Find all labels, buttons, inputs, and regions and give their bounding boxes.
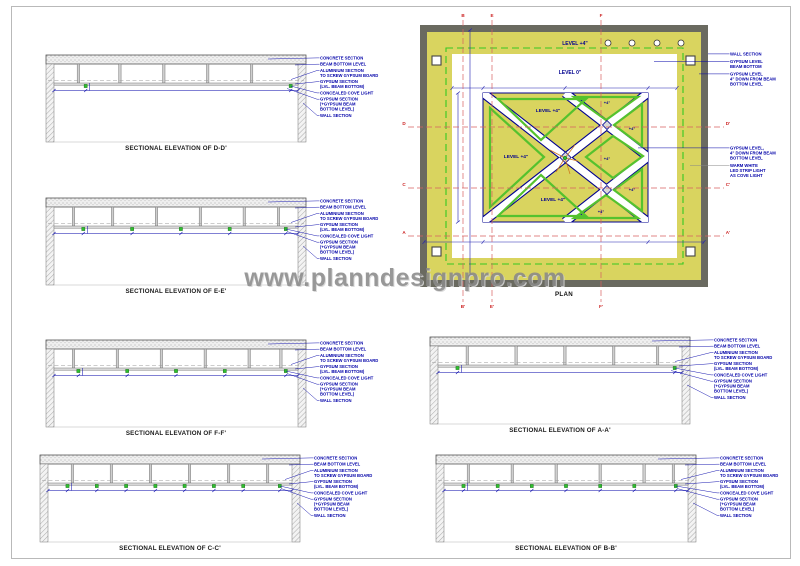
elevation-annotation: TO SCREW GYPSUM BOARD	[714, 355, 772, 360]
elevation-annotation: CONCRETE SECTION	[320, 340, 363, 345]
cove-light	[131, 227, 134, 230]
beam	[515, 346, 517, 365]
section-letter: D'	[726, 121, 730, 126]
section-letter: A'	[726, 230, 730, 235]
beam	[656, 346, 658, 365]
elevation-annotation: BEAM BOTTOM LEVEL	[320, 62, 367, 67]
beam	[111, 207, 113, 226]
beam	[250, 64, 252, 83]
beam	[266, 464, 268, 483]
gypsum-ceiling	[48, 483, 292, 485]
elevation-annotation: BOTTOM LEVEL)	[720, 507, 755, 512]
elevation-annotation: TO SCREW GYPSUM BOARD	[720, 473, 778, 478]
elevation-caption: SECTIONAL ELEVATION OF B-B'	[515, 545, 617, 552]
cove-light	[228, 227, 231, 230]
elevation-annotation: TO SCREW GYPSUM BOARD	[314, 473, 372, 478]
elevation-annotation: BEAM BOTTOM LEVEL	[320, 205, 367, 210]
section-letter: F	[600, 13, 603, 18]
beam	[110, 464, 112, 483]
elevation-annotation: (LVL. BEAM BOTTOM)	[314, 484, 359, 489]
beam	[199, 207, 201, 226]
elevation-caption: SECTIONAL ELEVATION OF E-E'	[125, 288, 226, 295]
concrete-slab	[46, 55, 306, 64]
gypsum-ceiling	[438, 365, 682, 367]
concrete-slab	[430, 337, 690, 346]
level-label: LEVEL +4"	[562, 41, 588, 47]
beam	[163, 64, 165, 83]
level-label: +4"	[629, 187, 636, 192]
elevation-caption: SECTIONAL ELEVATION OF C-C'	[119, 545, 221, 552]
concrete-slab	[46, 198, 306, 207]
plan-annotation: WALL SECTION	[730, 51, 762, 56]
wall-left	[46, 349, 54, 427]
elevation-drawing: CONCRETE SECTIONBEAM BOTTOM LEVELALUMINI…	[402, 325, 800, 443]
section-letter: F'	[599, 304, 603, 309]
level-label: LEVEL +4"	[541, 197, 565, 203]
wall-right	[682, 346, 690, 424]
plan-annotation: BOTTOM LEVEL	[730, 155, 763, 160]
wall-left	[46, 207, 54, 285]
beam	[155, 207, 157, 226]
elevation-annotation: WALL SECTION	[720, 513, 752, 518]
beam	[467, 464, 469, 483]
elevation-drawing: CONCRETE SECTIONBEAM BOTTOM LEVELALUMINI…	[18, 43, 418, 161]
cove-light	[599, 484, 602, 487]
section-letter: C'	[726, 182, 730, 187]
beam	[119, 64, 121, 83]
plan-annotation: BOTTOM LEVEL	[730, 81, 763, 86]
plan-column	[432, 247, 441, 256]
beam	[248, 349, 250, 368]
elevation-annotation: CONCEALED COVE LIGHT	[314, 490, 368, 495]
elevation-annotation: WALL SECTION	[320, 398, 352, 403]
level-label: +4"	[598, 209, 605, 214]
elevation-annotation: (LVL. BEAM BOTTOM)	[720, 484, 765, 489]
elevation-annotation: (LVL. BEAM BOTTOM)	[714, 366, 759, 371]
cove-light	[212, 484, 215, 487]
elevation-annotation: BOTTOM LEVEL)	[314, 507, 349, 512]
beam	[204, 349, 206, 368]
concrete-slab	[46, 340, 306, 349]
cove-light	[77, 369, 80, 372]
elevation-annotation: WALL SECTION	[320, 256, 352, 261]
beam	[599, 464, 601, 483]
beam	[564, 346, 566, 365]
beam	[643, 464, 645, 483]
cove-light	[223, 369, 226, 372]
beam	[227, 464, 229, 483]
wall-left	[46, 64, 54, 142]
elevation-annotation: (LVL. BEAM BOTTOM)	[320, 84, 365, 89]
level-label: +4"	[604, 156, 611, 161]
beam	[72, 207, 74, 226]
cove-light	[633, 484, 636, 487]
gypsum-ceiling	[54, 83, 298, 85]
elevation-d-d: CONCRETE SECTIONBEAM BOTTOM LEVELALUMINI…	[18, 43, 418, 161]
cove-light	[242, 484, 245, 487]
beam	[280, 349, 282, 368]
cove-light	[126, 369, 129, 372]
elevation-annotation: BEAM BOTTOM LEVEL	[314, 462, 361, 467]
section-letter: B'	[461, 304, 465, 309]
wall-left	[436, 464, 444, 542]
beam	[243, 207, 245, 226]
elevation-annotation: WALL SECTION	[320, 113, 352, 118]
wall-left	[40, 464, 48, 542]
cove-light	[84, 84, 87, 87]
cove-light	[564, 484, 567, 487]
section-letter: D	[402, 121, 406, 126]
elevation-annotation: BOTTOM LEVEL)	[320, 392, 355, 397]
plan-downlight	[629, 40, 635, 46]
beam	[672, 464, 674, 483]
beam	[72, 349, 74, 368]
cove-light	[456, 366, 459, 369]
elevation-annotation: CONCEALED COVE LIGHT	[320, 90, 374, 95]
cove-light	[154, 484, 157, 487]
section-letter: E	[490, 13, 493, 18]
watermark: www.planndesignpro.com	[232, 264, 578, 293]
beam	[277, 207, 279, 226]
beam	[207, 64, 209, 83]
elevation-caption: SECTIONAL ELEVATION OF D-D'	[125, 145, 227, 152]
elevation-annotation: (LVL. BEAM BOTTOM)	[320, 369, 365, 374]
beam	[77, 64, 79, 83]
section-letter: C	[402, 182, 406, 187]
beam	[613, 346, 615, 365]
elevation-drawing: CONCRETE SECTIONBEAM BOTTOM LEVELALUMINI…	[18, 328, 418, 446]
cove-light	[496, 484, 499, 487]
cove-light	[174, 369, 177, 372]
section-letter: B	[461, 13, 465, 18]
elevation-annotation: TO SCREW GYPSUM BOARD	[320, 73, 378, 78]
elevation-b-b: CONCRETE SECTIONBEAM BOTTOM LEVELALUMINI…	[408, 443, 800, 561]
cove-light	[95, 484, 98, 487]
beam	[511, 464, 513, 483]
plan-downlight	[605, 40, 611, 46]
elevation-f-f: CONCRETE SECTIONBEAM BOTTOM LEVELALUMINI…	[18, 328, 418, 446]
beam	[555, 464, 557, 483]
elevation-annotation: BEAM BOTTOM LEVEL	[720, 462, 767, 467]
elevation-annotation: CONCRETE SECTION	[714, 337, 757, 342]
elevation-c-c: CONCRETE SECTIONBEAM BOTTOM LEVELALUMINI…	[12, 443, 412, 561]
beam	[149, 464, 151, 483]
plan-annotation: BEAM BOTTOM	[730, 64, 762, 69]
cove-light	[530, 484, 533, 487]
elevation-drawing: CONCRETE SECTIONBEAM BOTTOM LEVELALUMINI…	[12, 443, 412, 561]
elevation-drawing: CONCRETE SECTIONBEAM BOTTOM LEVELALUMINI…	[408, 443, 800, 561]
elevation-annotation: (LVL. BEAM BOTTOM)	[320, 227, 365, 232]
cove-light	[179, 227, 182, 230]
gypsum-ceiling	[54, 226, 298, 228]
elevation-a-a: CONCRETE SECTIONBEAM BOTTOM LEVELALUMINI…	[402, 325, 800, 443]
drawing-sheet: CONCRETE SECTIONBEAM BOTTOM LEVELALUMINI…	[0, 0, 800, 566]
elevation-annotation: BEAM BOTTOM LEVEL	[714, 344, 761, 349]
level-label: LEVEL +4"	[536, 108, 560, 114]
concrete-slab	[436, 455, 696, 464]
plan-downlight	[678, 40, 684, 46]
elevation-annotation: BEAM BOTTOM LEVEL	[320, 347, 367, 352]
beam	[466, 346, 468, 365]
elevation-annotation: WALL SECTION	[314, 513, 346, 518]
elevation-annotation: CONCEALED COVE LIGHT	[320, 233, 374, 238]
elevation-annotation: CONCEALED COVE LIGHT	[320, 375, 374, 380]
wall-right	[688, 464, 696, 542]
plan-annotation: AS COVE LIGHT	[730, 173, 763, 178]
elevation-annotation: CONCRETE SECTION	[320, 55, 363, 60]
concrete-slab	[40, 455, 300, 464]
wall-left	[430, 346, 438, 424]
elevation-annotation: BOTTOM LEVEL)	[320, 250, 355, 255]
plan-downlight	[654, 40, 660, 46]
elevation-annotation: WALL SECTION	[714, 395, 746, 400]
level-label: LEVEL +4"	[504, 154, 528, 160]
level-label: LEVEL 0"	[559, 70, 582, 76]
cove-light	[82, 227, 85, 230]
elevation-annotation: TO SCREW GYPSUM BOARD	[320, 216, 378, 221]
elevation-caption: SECTIONAL ELEVATION OF F-F'	[126, 430, 227, 437]
elevation-annotation: CONCRETE SECTION	[314, 455, 357, 460]
plan-column	[686, 56, 695, 65]
elevation-annotation: CONCRETE SECTION	[720, 455, 763, 460]
cove-light	[125, 484, 128, 487]
elevation-annotation: CONCRETE SECTION	[320, 198, 363, 203]
plan-column	[686, 247, 695, 256]
elevation-caption: SECTIONAL ELEVATION OF A-A'	[509, 427, 611, 434]
elevation-annotation: CONCEALED COVE LIGHT	[720, 490, 774, 495]
section-letter: E'	[490, 304, 494, 309]
plan-column	[432, 56, 441, 65]
elevation-annotation: TO SCREW GYPSUM BOARD	[320, 358, 378, 363]
beam	[160, 349, 162, 368]
section-letter: A	[402, 230, 406, 235]
elevation-annotation: BOTTOM LEVEL)	[714, 389, 749, 394]
level-label: +4"	[629, 126, 636, 131]
elevation-annotation: BOTTOM LEVEL)	[320, 107, 355, 112]
beam	[116, 349, 118, 368]
cove-light	[66, 484, 69, 487]
elevation-annotation: CONCEALED COVE LIGHT	[714, 372, 768, 377]
level-label: +4"	[604, 100, 611, 105]
beam	[71, 464, 73, 483]
cove-light	[462, 484, 465, 487]
cove-light	[183, 484, 186, 487]
beam	[188, 464, 190, 483]
